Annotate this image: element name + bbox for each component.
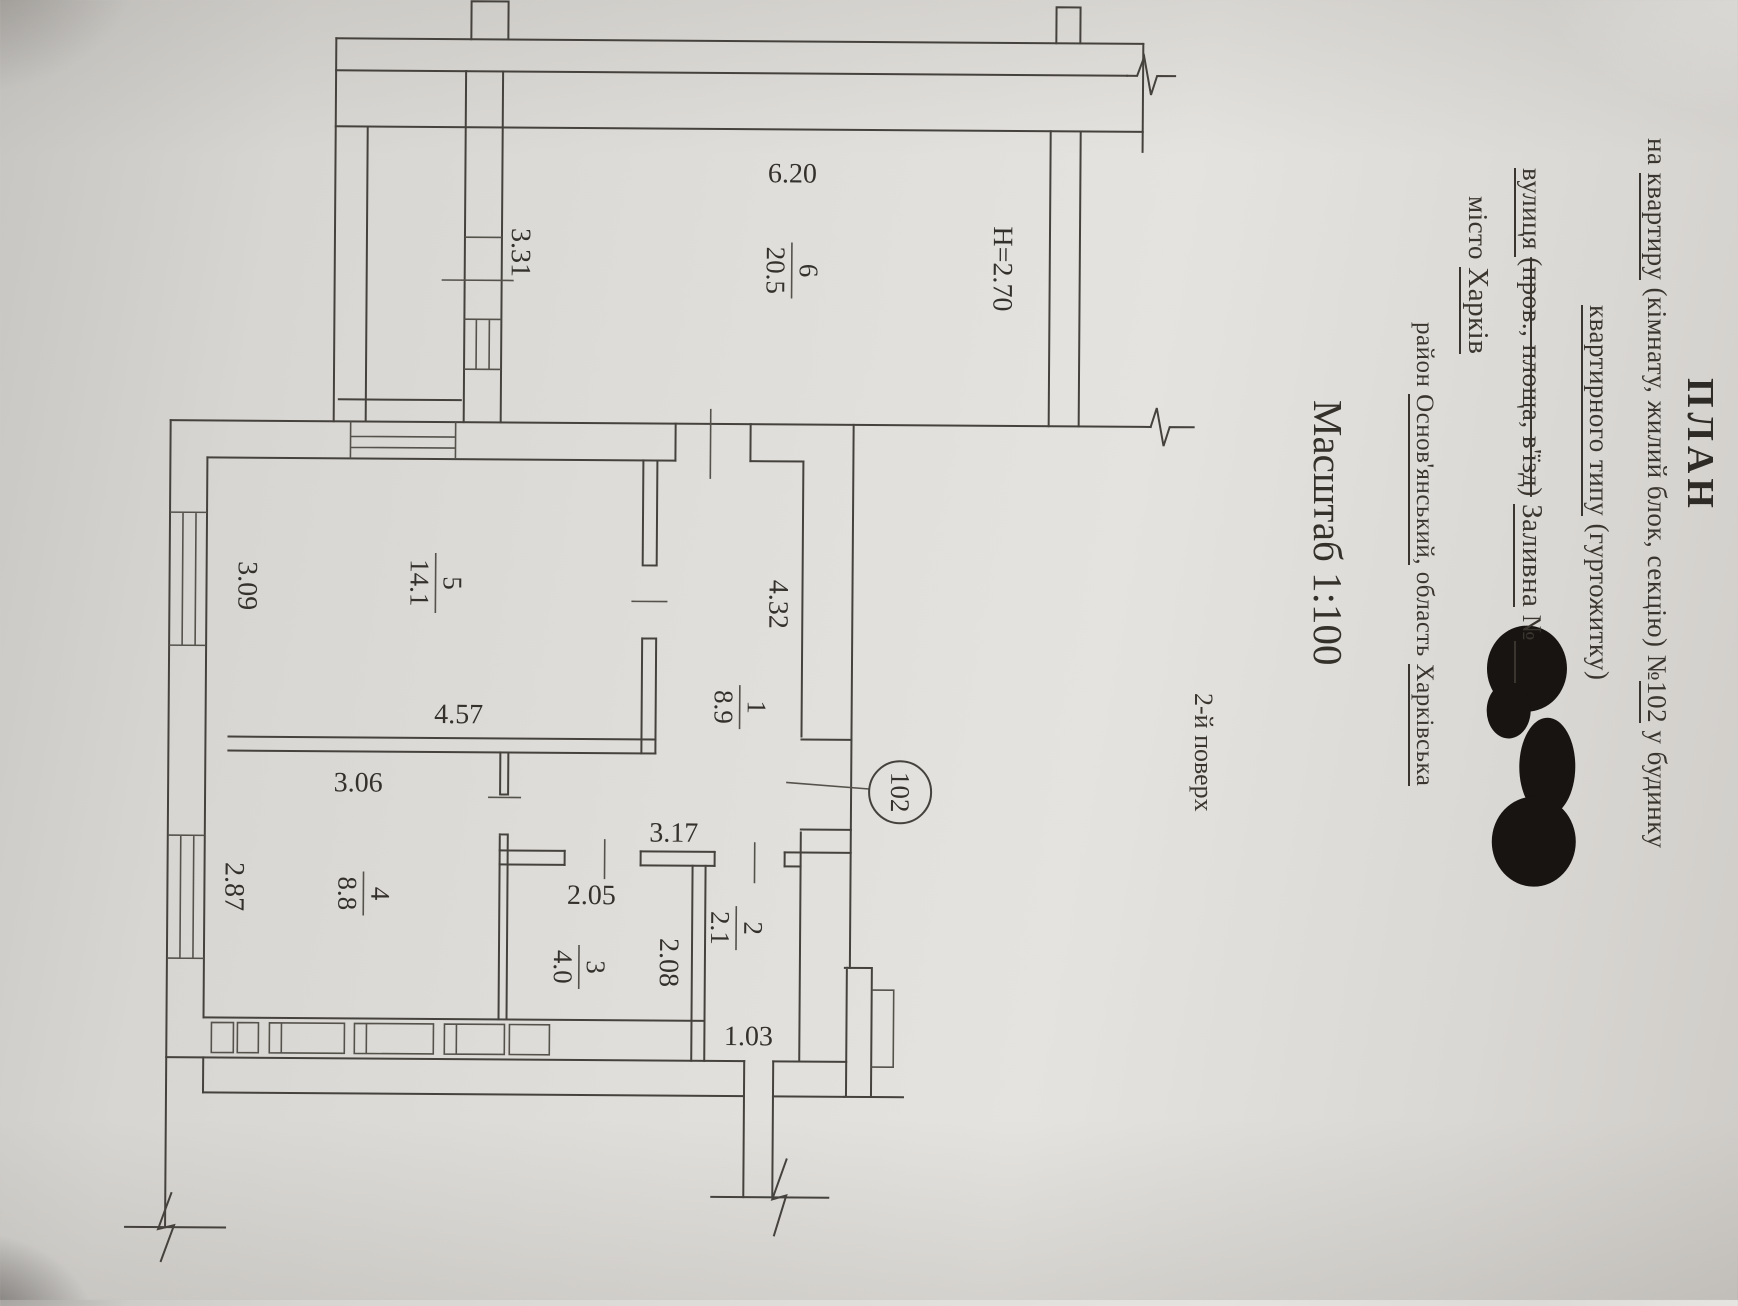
- city-label: місто: [1463, 196, 1493, 267]
- wall-stub: [471, 1, 508, 39]
- dim-3-31: 3.31: [505, 228, 536, 277]
- room-4-label: 4 8.8: [332, 871, 395, 915]
- room-6-label: 6 20.5: [761, 242, 824, 298]
- street-value: Заливна: [1513, 504, 1548, 607]
- dim-3-17: 3.17: [649, 817, 698, 848]
- room6-balcony-window-wall: [441, 71, 515, 422]
- svg-text:3: 3: [581, 960, 611, 974]
- region-label: область: [1411, 565, 1438, 664]
- street-line: вулиця (пров., площа, в'їзд) Заливна №: [1514, 168, 1548, 683]
- subject-prefix: на: [1642, 138, 1672, 173]
- left-wall: [165, 420, 208, 1227]
- dimension-labels: 6.20 3.31 H=2.70 3.09 4.57 4.32 3.06 2.8…: [217, 154, 1018, 1054]
- right-wall: [799, 425, 908, 1098]
- window-band-icons: [211, 1022, 549, 1054]
- svg-text:8.8: 8.8: [332, 876, 362, 910]
- apartment-number-badge: 102: [786, 760, 931, 823]
- facade-wall: [207, 405, 803, 479]
- dim-3-09: 3.09: [231, 561, 262, 610]
- svg-text:5: 5: [438, 576, 468, 590]
- lower-extension-walls: [125, 1057, 844, 1266]
- dim-2-08: 2.08: [653, 938, 684, 987]
- window-icon: [167, 835, 205, 958]
- svg-text:2.1: 2.1: [705, 911, 735, 945]
- subject-line: на квартиру (кімнату, жилий блок, секцію…: [1641, 138, 1672, 848]
- svg-text:14.1: 14.1: [404, 559, 434, 606]
- dimension-tick: [442, 280, 514, 281]
- window-icon: [464, 237, 502, 369]
- ceiling-height: H=2.70: [986, 226, 1018, 311]
- svg-text:4: 4: [365, 887, 395, 901]
- room-5-label: 5 14.1: [404, 553, 467, 613]
- street-options: (пров., площа, в'їзд): [1517, 257, 1547, 497]
- dim-2-05: 2.05: [567, 880, 616, 911]
- wall-stub: [1056, 7, 1080, 43]
- subject-number: 102: [1639, 681, 1672, 723]
- interior-partitions: [226, 458, 853, 1062]
- floor-label: 2-й поверх: [1188, 693, 1218, 812]
- room6-walls: [171, 125, 1196, 446]
- svg-text:4.0: 4.0: [548, 950, 578, 984]
- street-number-blank: [1514, 641, 1547, 683]
- subject-tail: у будинку: [1642, 723, 1672, 848]
- district-label: район: [1411, 322, 1438, 394]
- dim-2-87: 2.87: [218, 862, 249, 911]
- subject-kind: квартиру: [1639, 173, 1672, 281]
- dim-4-32: 4.32: [762, 580, 793, 629]
- apartment-number: 102: [885, 772, 915, 813]
- room-2-label: 2 2.1: [705, 906, 768, 950]
- district-value: Основ'янський,: [1408, 394, 1438, 565]
- dim-1-03: 1.03: [724, 1021, 773, 1052]
- number-sign: №: [1517, 607, 1547, 641]
- subject-mid: (кімнату, жилий блок, секцію) №: [1642, 280, 1672, 681]
- wall-break-icon: [1151, 408, 1194, 446]
- district-region-line: район Основ'янський, область Харківська: [1410, 322, 1438, 786]
- window-icon: [350, 421, 455, 459]
- wall-break-icon: [1127, 57, 1175, 95]
- room-1-label: 1 8.9: [709, 685, 772, 729]
- street-label: вулиця: [1514, 168, 1547, 257]
- dim-4-57: 4.57: [434, 699, 483, 730]
- svg-text:1: 1: [742, 700, 772, 714]
- dim-3-06: 3.06: [334, 767, 383, 798]
- room-3-label: 3 4.0: [548, 945, 611, 989]
- city-value: Харків: [1459, 267, 1494, 354]
- type-main: квартирного типу: [1581, 305, 1614, 516]
- room-labels: 6 20.5 5 14.1 1 8.9 4 8.8 3 4.0 2 2.1: [332, 239, 824, 990]
- scanned-floor-plan-page: { "doc": { "title": "ПЛАН", "subject_pre…: [0, 0, 1738, 1300]
- svg-text:8.9: 8.9: [709, 690, 739, 724]
- pilaster: [871, 990, 894, 1067]
- window-icon: [169, 512, 207, 645]
- city-line: місто Харків: [1461, 196, 1494, 354]
- type-paren: (гуртожитку): [1584, 516, 1614, 680]
- svg-text:20.5: 20.5: [761, 247, 791, 294]
- svg-text:2: 2: [738, 921, 768, 935]
- svg-text:6: 6: [794, 264, 824, 278]
- region-value: Харківська: [1408, 664, 1438, 787]
- scale-label: Масштаб 1:100: [1304, 400, 1352, 666]
- building-type-line: квартирного типу (гуртожитку): [1583, 305, 1614, 681]
- page-title: ПЛАН: [1678, 378, 1722, 513]
- dim-6-20: 6.20: [768, 158, 817, 189]
